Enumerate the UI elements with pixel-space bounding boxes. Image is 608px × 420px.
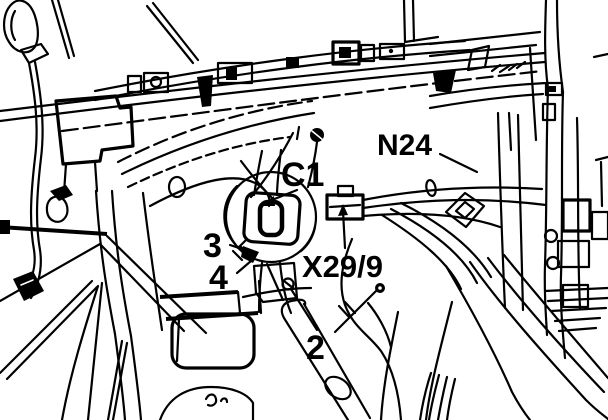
callout-c1-label: C1 [281,156,324,194]
callout-4-leader [237,261,251,273]
callout-2-leader-left [291,289,317,330]
callout-4-label: 4 [209,259,228,297]
callout-n24-leader [440,154,477,172]
console-pad [172,314,254,368]
illustration-frame: C1 N24 3 4 X29/9 2 [0,0,608,420]
plate-hole [260,202,282,235]
hinge-upper [563,200,590,231]
grommet [169,177,185,197]
left-structures [0,96,206,420]
diagram-canvas: C1 N24 3 4 X29/9 2 [0,0,608,420]
callout-x299-label: X29/9 [302,249,383,284]
cowl-beams [0,0,546,131]
sill-bottom-right [381,255,608,420]
callout-x299-leader [343,211,345,248]
hanging-tab [197,75,213,107]
wire-harness-top-left [4,1,48,301]
callout-2-label: 2 [306,329,325,367]
cowl-diagonal-edges [52,0,198,63]
callout-n24-label: N24 [377,129,432,162]
callout-2-leader-right [335,291,376,332]
door-pillar [498,0,608,358]
